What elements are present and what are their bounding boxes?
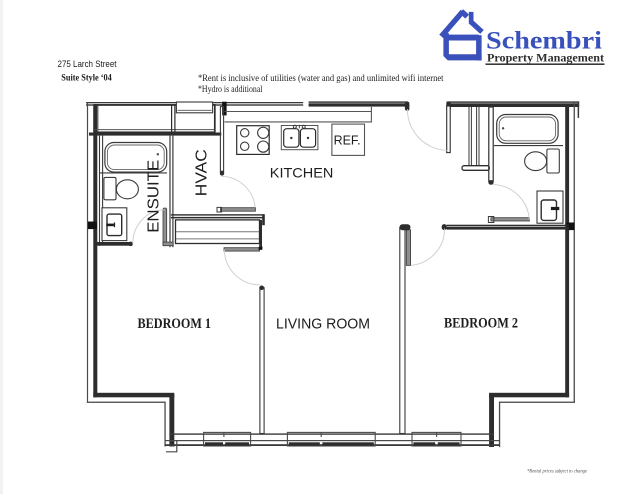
svg-text:*Rent is inclusive of utilitie: *Rent is inclusive of utilities (water a… <box>198 73 444 83</box>
svg-text:LIVING ROOM: LIVING ROOM <box>276 316 370 333</box>
svg-text:BEDROOM 1: BEDROOM 1 <box>138 316 212 332</box>
svg-text:HVAC: HVAC <box>193 149 210 196</box>
svg-text:*Hydro is additional: *Hydro is additional <box>198 84 263 94</box>
svg-text:Schembri: Schembri <box>486 28 602 55</box>
svg-text:REF.: REF. <box>334 133 361 147</box>
svg-text:KITCHEN: KITCHEN <box>270 166 334 181</box>
svg-text:275 Larch Street: 275 Larch Street <box>58 59 117 69</box>
svg-text:BEDROOM 2: BEDROOM 2 <box>444 316 518 332</box>
svg-text:Property Management: Property Management <box>487 53 604 65</box>
svg-text:Suite Style ‘04: Suite Style ‘04 <box>61 73 112 84</box>
svg-text:*Rental prices subject to chan: *Rental prices subject to change <box>527 469 587 475</box>
svg-text:ENSUITE: ENSUITE <box>145 160 162 233</box>
